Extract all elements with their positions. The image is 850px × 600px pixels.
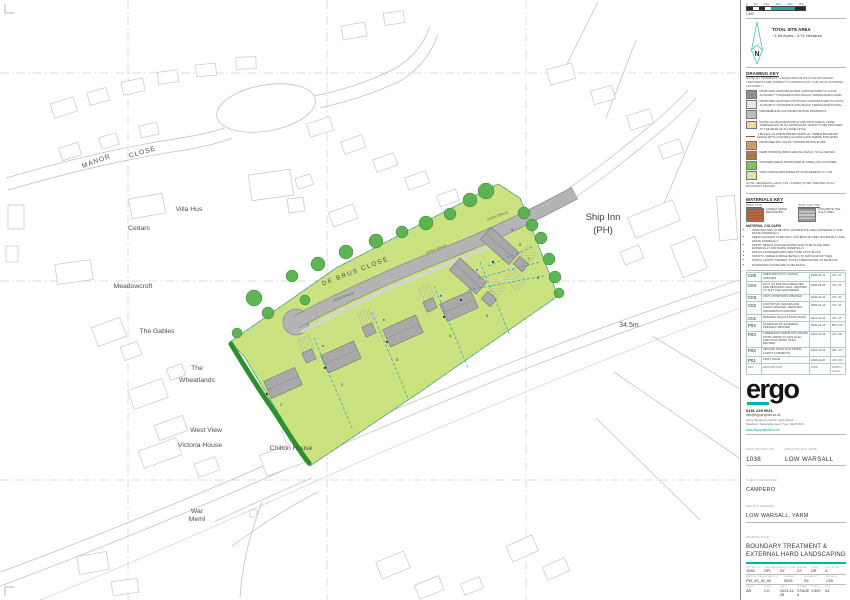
key-label: PERMEABLE BLOCK PAVED PRIVATE DRIVEWAYS	[760, 110, 827, 113]
drawing-key-note: NOTE: ALL MATERIALS / LANDSCAPE DETAILS …	[746, 77, 846, 88]
label-spot-height: 34.5m	[619, 322, 639, 329]
brick-material: BRICK TYPE FORMAT MIXED BRICKWORK	[746, 204, 794, 222]
revision-row: C01BUILDING REGULATIONS ISSUE2024-12-20C…	[747, 314, 846, 322]
swatch-paving-slabs	[746, 121, 757, 130]
drawing-title-section: DRAWING TITLE BOUNDARY TREATMENT & EXTER…	[746, 523, 846, 566]
key-label: OPEN SPACE MAINTAINED BY MANAGEMENT CO. …	[760, 171, 833, 174]
codes-row-3: DRWNAN CHKDCO DATE2024-11-25 FORMATSTAGE…	[746, 585, 846, 598]
key-item-driveways: PERMEABLE BLOCK PAVED PRIVATE DRIVEWAYS	[746, 110, 846, 119]
key-item-paving-slabs: PAVING SLAB ACCESS PATHS AND PATIO AREAS…	[746, 121, 846, 131]
swatch-footpaths	[746, 100, 757, 109]
sheet-corner-marks	[5, 4, 14, 596]
key-label: PROPOSED ADOPTED FOOTPATHS CONSTRUCTED T…	[760, 100, 847, 107]
key-label: PROPOSED ADOPTED ROADS CONSTRUCTED TO LO…	[760, 90, 847, 97]
key-label: PROPOSED BIG GALAXY 600x600 PAVING SLABS	[760, 141, 826, 144]
drawing-key-heading: DRAWING KEY	[746, 71, 846, 76]
label-cedars: Cedars	[128, 225, 151, 232]
firm-address-line2: Newburn, Newcastle upon Tyne, NE15 8LN	[746, 423, 846, 427]
swatch-open-space	[746, 171, 757, 180]
key-item-galaxy-slabs: PROPOSED BIG GALAXY 600x600 PAVING SLABS	[746, 141, 846, 150]
project-address: LOW WARSALL, YARM	[746, 513, 846, 519]
key-item-open-space: OPEN SPACE MAINTAINED BY MANAGEMENT CO. …	[746, 171, 846, 180]
project-name: LOW WARSALL	[785, 456, 833, 463]
label-the: The	[191, 365, 203, 372]
revision-row: P01FIRST ISSUE2024-11-26AN / CO	[747, 356, 846, 364]
ergo-logo: ergo	[746, 378, 846, 401]
firm-section: ergo 0191 229 9021 info@ergoprojects.co.…	[746, 375, 846, 435]
label-close: CLOSE	[128, 145, 157, 159]
key-item-footpaths: PROPOSED ADOPTED FOOTPATHS CONSTRUCTED T…	[746, 100, 846, 109]
site-area-value: ~1.84 Acres - 0.74 Hectares	[772, 33, 822, 38]
revision-row: P02SECOND ISSUE FOLLOWING CLIENT COMMENT…	[747, 347, 846, 356]
material-colours-list: WINDOWS ARE TO BE UPVC ANTHRACITE GREY E…	[746, 229, 846, 267]
brick-label: FORMAT MIXED BRICKWORK	[766, 208, 794, 215]
north-letter: N	[754, 51, 759, 58]
revision-row: P04SCHEDULE OF EXTERNAL FINISHES UPDATED…	[747, 322, 846, 331]
project-address-label: PROJECT ADDRESS	[746, 505, 774, 508]
revision-table: C05SHED AND PLOT 1 FENCE UPDATED2025-02-…	[746, 272, 846, 375]
site-area-title: TOTAL SITE AREA	[772, 27, 822, 32]
revision-row: C05SHED AND PLOT 1 FENCE UPDATED2025-02-…	[747, 272, 846, 281]
scale-bar-graphic	[746, 6, 806, 11]
client-section: CLIENT / DEVELOPER CAMPERO PROJECT ADDRE…	[746, 466, 846, 523]
label-the-gables: The Gables	[139, 328, 175, 335]
title-block: 0 5m 10m 15m 20m 25m 1:500 N TOTAL SITE …	[740, 0, 850, 600]
codes-row-1: PROJECT ID1038 ORIGINATORGFL FUNCTIONALZ…	[746, 566, 846, 576]
firm-website: www.ergoprojects.co.uk	[746, 428, 846, 432]
materials-section: MATERIALS KEY BRICK TYPE FORMAT MIXED BR…	[746, 194, 846, 271]
label-wheatlands: Wheatlands	[179, 377, 215, 384]
key-label: PAVING SLAB ACCESS PATHS AND PATIO AREAS…	[760, 121, 847, 131]
client-name: CAMPERO	[746, 487, 846, 493]
swatch-driveways	[746, 110, 757, 119]
revision-row: C04PLOT 2/3 RAILINGS REMOVED AND RETAINI…	[747, 281, 846, 294]
label-meml: Meml	[189, 516, 206, 523]
label-chilton-house: Chilton House	[270, 445, 313, 452]
key-item-kerb-brick: KERB STANDING BRICK EDGING DETAIL TO ALL…	[746, 151, 846, 160]
revision-row: C03UNIT 1 POSITIONS UPDATED2025-01-31CO …	[747, 294, 846, 302]
roof-label: CONCRETE TILE LIGHT GREY	[818, 208, 846, 215]
project-id-section: ERGO PROJECT No. 1038 ERGO PROJECT NAME …	[746, 435, 846, 466]
scale-bar: 0 5m 10m 15m 20m 25m 1:500	[746, 2, 846, 19]
roof-material: ROOF TILE TYPE CONCRETE TILE LIGHT GREY	[798, 204, 846, 222]
drawing-title-line1: BOUNDARY TREATMENT &	[746, 544, 846, 552]
site-plan-map: 1 2 3 4 5 6 7 8 9 MANOR CLOSE Villa Hus …	[0, 0, 745, 600]
label-west-view: West View	[190, 427, 222, 434]
scale-ratio: 1:500	[746, 12, 846, 16]
project-name-label: ERGO PROJECT NAME	[785, 448, 817, 451]
project-no-label: ERGO PROJECT No.	[746, 448, 775, 451]
material-colours-heading: MATERIAL COLOURS	[746, 224, 846, 228]
key-item-timber-fence: 1.8M HIGH CLOSE BOARDED VERTICAL TIMBER …	[746, 133, 846, 140]
north-arrow-icon: N	[746, 21, 768, 65]
drawing-title-label: DRAWING TITLE	[746, 536, 769, 539]
brick-swatch	[746, 208, 764, 222]
revision-row: C02FOOTPATHS, FENCES AND GATES UPDATED, …	[747, 302, 846, 315]
label-victoria-house: Victoria House	[178, 442, 222, 449]
swatch-galaxy-slabs	[746, 141, 757, 150]
hedgehog-note: NOTE: HEDGEHOG GAPS (130 x 130MM) TO BE …	[746, 182, 846, 190]
client-label: CLIENT / DEVELOPER	[746, 479, 777, 482]
drawing-key-section: DRAWING KEY NOTE: ALL MATERIALS / LANDSC…	[746, 68, 846, 195]
drawing-title-line2: EXTERNAL HARD LANDSCAPING	[746, 552, 846, 560]
codes-row-2: UNIQUE CLASSIFICATIONPW_40_40_00 NUMBER0…	[746, 575, 846, 585]
label-manor: MANOR	[81, 153, 112, 170]
label-meadowcroft: Meadowcroft	[114, 283, 153, 290]
key-label: GRASSED AREAS MAINTAINED BY DWELLING OCC…	[760, 161, 837, 164]
roof-tile-swatch	[798, 208, 816, 222]
firm-email: info@ergoprojects.co.uk	[746, 413, 846, 417]
key-label: 1.8M HIGH CLOSE BOARDED VERTICAL TIMBER …	[758, 133, 847, 140]
swatch-kerb-brick	[746, 151, 757, 160]
label-villa-hus: Villa Hus	[176, 206, 203, 213]
revision-row: P03THRESHOLD AND BLOCK PAVING POINT ADDE…	[747, 331, 846, 347]
label-ship-inn-ph: (PH)	[593, 225, 613, 236]
north-site-area-section: N TOTAL SITE AREA ~1.84 Acres - 0.74 Hec…	[746, 19, 846, 68]
project-no: 1038	[746, 456, 775, 463]
material-colour-item: RAINWATER GOODS ARE TO BE BLACK	[752, 264, 846, 267]
drawing-sheet: 1 2 3 4 5 6 7 8 9 MANOR CLOSE Villa Hus …	[0, 0, 850, 600]
revision-header-row: REVDESCRIPTION DATEDRWN / CHKD	[747, 364, 846, 375]
label-war: War	[191, 508, 204, 515]
teal-rule	[746, 562, 846, 563]
label-ship-inn: Ship Inn	[586, 212, 621, 223]
swatch-timber-fence	[746, 136, 755, 137]
swatch-grass	[746, 161, 757, 170]
key-item-grass: GRASSED AREAS MAINTAINED BY DWELLING OCC…	[746, 161, 846, 170]
materials-heading: MATERIALS KEY	[746, 197, 846, 202]
key-item-roads: PROPOSED ADOPTED ROADS CONSTRUCTED TO LO…	[746, 90, 846, 99]
development-site: 1 2 3 4 5 6 7 8 9	[230, 183, 575, 466]
codes-section: PROJECT ID1038 ORIGINATORGFL FUNCTIONALZ…	[746, 566, 846, 600]
key-label: KERB STANDING BRICK EDGING DETAIL TO ALL…	[760, 151, 835, 154]
swatch-roads	[746, 90, 757, 99]
